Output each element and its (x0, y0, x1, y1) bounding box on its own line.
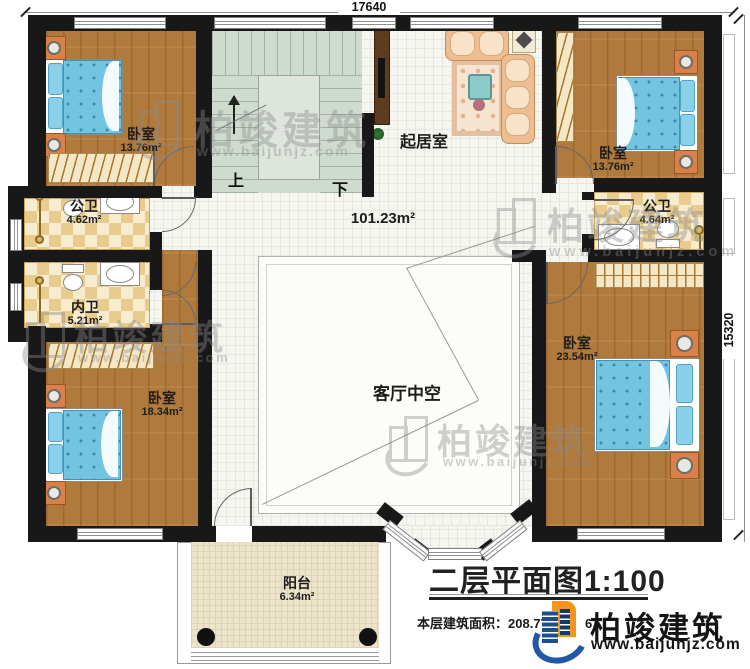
wall (252, 526, 386, 542)
bed-pillow (680, 114, 695, 146)
bed-pillow (676, 364, 693, 403)
wall (542, 178, 556, 192)
door-leaf (555, 146, 557, 184)
sofa-cushion (479, 31, 504, 56)
toilet-icon (63, 274, 83, 291)
room-label-bedroom-tl: 卧室13.76m² (121, 127, 162, 155)
dimension-tick (733, 14, 744, 25)
room-label-void: 客厅中空 (373, 386, 441, 405)
room-label-bedroom-bl: 卧室18.34m² (142, 391, 183, 419)
wardrobe (48, 153, 154, 183)
sink-icon (106, 265, 134, 283)
wall (542, 15, 556, 193)
bed-pillow (680, 80, 695, 112)
wardrobe (594, 263, 704, 288)
door-leaf (162, 323, 196, 325)
company-url: www.baijunjz.com (591, 636, 741, 654)
stair-down-label: 下 (332, 176, 348, 200)
column (197, 628, 215, 646)
coffee-table (468, 74, 492, 100)
bed-pillow (676, 406, 693, 445)
window-sill (723, 34, 735, 174)
bed-pillow (48, 97, 63, 129)
nightstand (674, 50, 698, 74)
wall (588, 250, 722, 262)
stair-arrowhead-icon (228, 89, 240, 105)
wall (594, 178, 722, 192)
nightstand (670, 330, 699, 357)
window (577, 528, 665, 540)
wall (8, 186, 24, 340)
towel-knob-icon (694, 225, 704, 235)
bed-fold (101, 411, 118, 477)
plan-title: 二层平面图1:100 (429, 556, 666, 600)
column (359, 628, 377, 646)
door-leaf (594, 199, 634, 201)
room-label-living: 起居室 (400, 134, 448, 152)
room-label-bath-left: 公卫4.62m² (67, 199, 102, 227)
bed-pillow (48, 444, 63, 474)
bed-pillow (48, 63, 63, 95)
wall (28, 15, 46, 197)
sofa-cushion (450, 31, 475, 56)
bed-pillow (48, 412, 63, 442)
sofa-cushion (505, 113, 530, 136)
towel-knob-icon (35, 235, 44, 244)
wall (198, 250, 212, 526)
window (10, 219, 22, 251)
room-label-bedroom-tr: 卧室13.76m² (593, 146, 634, 174)
bed-fold (102, 61, 119, 131)
dimension-tick (733, 530, 744, 541)
room-label-balcony: 阳台6.34m² (280, 576, 315, 604)
window (74, 17, 166, 29)
wall (8, 186, 154, 198)
door-leaf (250, 488, 252, 526)
window (410, 17, 494, 29)
window (214, 17, 326, 29)
toilet-icon (62, 264, 84, 273)
company-logo-icon (534, 599, 588, 657)
flowers-icon (473, 99, 485, 111)
room-label-hall-area: 101.23m² (351, 211, 415, 228)
towel-bar-icon (699, 235, 701, 249)
room-label-bath-inner: 内卫5.21m² (68, 300, 103, 328)
wardrobe (556, 32, 574, 142)
wall (150, 324, 162, 342)
floor-plan: 卧室13.76m² 卧室13.76m² 起居室 101.23m² 公卫4.62m… (0, 0, 750, 669)
wall (28, 326, 46, 542)
tv-icon (378, 58, 385, 98)
window (352, 17, 396, 29)
sofa-cushion (505, 86, 530, 109)
wall (150, 232, 162, 290)
wall (704, 15, 722, 542)
dimension-top-value: 17640 (338, 0, 400, 15)
wardrobe (48, 343, 154, 369)
sofa-cushion (505, 59, 530, 82)
wall (8, 250, 162, 262)
dimension-right-value: 15320 (722, 301, 738, 359)
towel-bar-icon (39, 285, 41, 323)
wall (362, 113, 374, 197)
towel-bar-icon (39, 197, 41, 239)
door-leaf (162, 197, 196, 199)
window (10, 283, 22, 311)
toilet-icon (656, 239, 680, 248)
wall (150, 186, 162, 198)
window (578, 17, 662, 29)
window (77, 528, 163, 540)
nightstand (674, 150, 698, 174)
stair-landing (258, 75, 320, 180)
room-label-bedroom-br: 卧室23.54m² (557, 336, 598, 364)
balcony-railing (191, 650, 379, 661)
partial-text: 6 (585, 616, 592, 631)
dimension-line-right (744, 15, 745, 542)
window-sill (723, 198, 735, 254)
stair-up-label: 上 (228, 167, 244, 191)
wall (196, 15, 212, 198)
door-leaf (546, 262, 548, 304)
nightstand (670, 452, 699, 479)
stair-treads-top (212, 31, 362, 75)
room-label-bath-right: 公卫4.64m² (640, 199, 675, 227)
wall (582, 192, 594, 200)
wall (532, 250, 546, 542)
window-sill (723, 344, 735, 520)
towel-knob-icon (35, 276, 44, 285)
floor-area-label: 本层建筑面积： (417, 616, 508, 631)
